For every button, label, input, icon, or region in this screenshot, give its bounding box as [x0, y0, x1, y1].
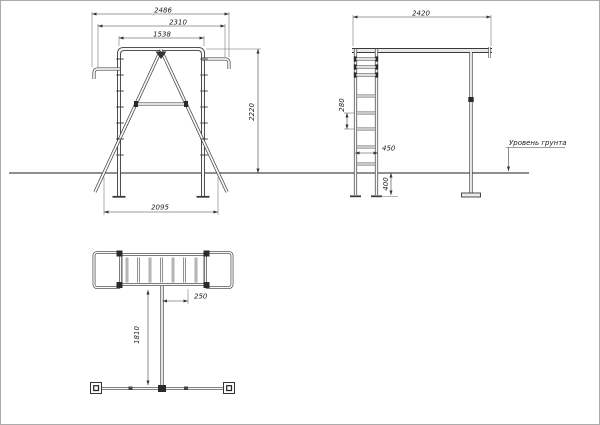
dim-inner-width-label: 2310: [169, 18, 187, 26]
a-frame-crossbar: [134, 101, 188, 107]
ladder-rungs-plan: [127, 258, 196, 283]
dim-rung-spacing-label: 280: [338, 98, 346, 112]
side-view: 2420 280 450 400 Уровень грунта: [338, 9, 567, 197]
left-handle: [94, 69, 120, 79]
ground-level-note: Уровень грунта: [506, 139, 567, 171]
crossbar-clamp: [134, 101, 138, 107]
drawing-canvas: 2486 2310 1538 2220 2095: [1, 1, 600, 425]
dim-height-label: 2220: [248, 103, 256, 121]
front-view: 2486 2310 1538 2220 2095: [92, 6, 261, 215]
far-post: [462, 52, 481, 197]
ladder-body-plan: [121, 255, 206, 285]
dim-post-offset-label: 250: [194, 293, 208, 301]
ladder-rungs: [357, 96, 375, 164]
frame-clamp: [117, 282, 123, 288]
monkeybar-frame: [119, 49, 203, 196]
ladder-top-rungs: [354, 56, 378, 77]
right-handle: [202, 59, 229, 69]
post-clamp: [468, 97, 473, 102]
ground-level-label: Уровень грунта: [509, 139, 567, 147]
bar-nub: [184, 387, 188, 390]
plan-view: 250 1810: [91, 251, 235, 394]
dim-overall-width-label: 2486: [154, 6, 172, 14]
technical-drawing-page: 2486 2310 1538 2220 2095: [0, 0, 600, 425]
frame-clamp: [204, 251, 210, 257]
side-dimensions: 2420 280 450 400: [338, 9, 491, 196]
outrigger-left-plate: [91, 383, 102, 394]
frame-clamp: [204, 282, 210, 288]
dim-below-ground-label: 400: [382, 177, 390, 191]
post-rung-marks: [116, 59, 208, 155]
dim-top-bar-label: 1538: [153, 30, 171, 38]
dim-leg-span-label: 2095: [151, 204, 169, 212]
bar-nub: [129, 387, 133, 390]
a-frame-right-leg: [161, 50, 227, 192]
dim-outrigger-length-label: 1810: [133, 326, 141, 344]
frame-clamp: [117, 251, 123, 257]
dim-ladder-width-label: 450: [382, 145, 396, 153]
plan-dimensions: 250 1810: [133, 289, 208, 385]
outrigger-center-connector: [158, 385, 166, 392]
a-frame-left-leg: [95, 50, 161, 192]
far-post-base-plate: [462, 193, 481, 197]
dim-depth-label: 2420: [412, 9, 430, 17]
crossbar-clamp: [184, 101, 188, 107]
outrigger-right-plate: [224, 383, 235, 394]
